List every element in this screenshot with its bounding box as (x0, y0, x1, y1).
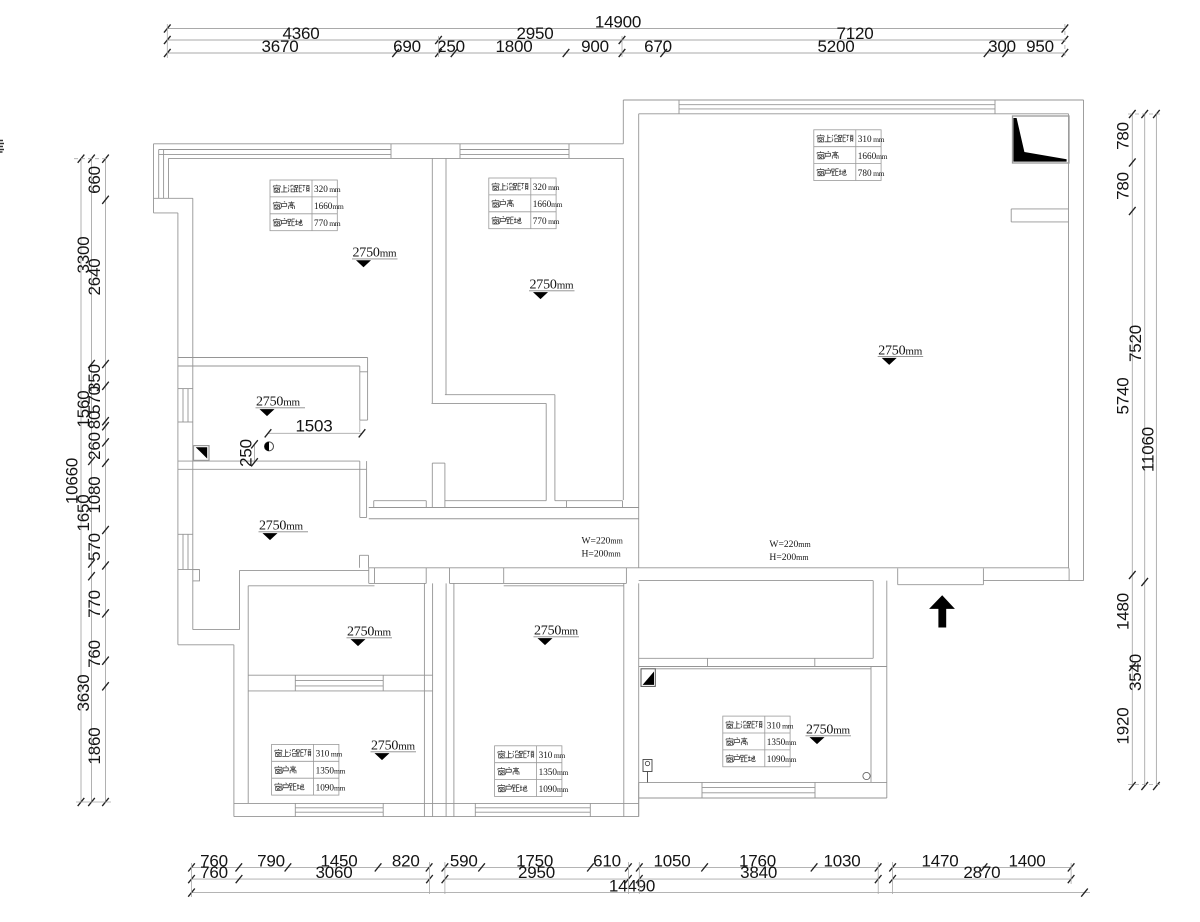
svg-text:3630: 3630 (74, 674, 93, 711)
svg-text:10660: 10660 (63, 458, 82, 504)
svg-text:610: 610 (593, 852, 621, 871)
svg-text:760: 760 (200, 863, 228, 882)
svg-text:2750mm: 2750mm (530, 278, 575, 293)
svg-text:1400: 1400 (1008, 852, 1045, 871)
svg-text:770 mm: 770 mm (533, 216, 560, 226)
svg-text:1660mm: 1660mm (314, 201, 344, 211)
svg-text:1660mm: 1660mm (858, 151, 888, 161)
svg-text:2950: 2950 (518, 863, 555, 882)
svg-text:14900: 14900 (595, 13, 641, 32)
svg-text:820: 820 (392, 852, 420, 871)
svg-text:H=200mm: H=200mm (582, 549, 622, 560)
svg-text:W=220mm: W=220mm (769, 539, 811, 550)
svg-text:670: 670 (644, 37, 672, 56)
svg-text:14490: 14490 (609, 877, 655, 896)
svg-text:250: 250 (237, 439, 256, 467)
svg-text:1480: 1480 (1114, 593, 1133, 630)
svg-text:2750mm: 2750mm (256, 395, 301, 410)
svg-text:3840: 3840 (740, 863, 777, 882)
svg-text:570: 570 (85, 533, 104, 561)
svg-text:7520: 7520 (1126, 325, 1145, 362)
svg-text:1050: 1050 (653, 852, 690, 871)
svg-text:780: 780 (1114, 122, 1133, 150)
svg-text:1090mm: 1090mm (767, 754, 797, 764)
svg-text:1920: 1920 (1114, 707, 1133, 744)
svg-text:2750mm: 2750mm (534, 624, 579, 639)
svg-text:2750mm: 2750mm (878, 343, 923, 358)
svg-text:790: 790 (257, 852, 285, 871)
svg-text:1030: 1030 (823, 852, 860, 871)
svg-text:250: 250 (437, 37, 465, 56)
svg-text:2750mm: 2750mm (371, 739, 416, 754)
svg-text:1560: 1560 (74, 390, 93, 427)
svg-text:1800: 1800 (495, 37, 532, 56)
svg-text:760: 760 (85, 640, 104, 668)
svg-text:H=200mm: H=200mm (769, 552, 809, 563)
svg-text:690: 690 (393, 37, 421, 56)
svg-text:3540: 3540 (1126, 654, 1145, 691)
svg-text:320 mm: 320 mm (533, 182, 560, 192)
svg-text:1660mm: 1660mm (533, 199, 563, 209)
svg-text:1350mm: 1350mm (316, 766, 346, 776)
svg-text:W=220mm: W=220mm (582, 536, 624, 547)
svg-text:3060: 3060 (315, 863, 352, 882)
svg-text:2750mm: 2750mm (806, 723, 851, 738)
svg-text:310 mm: 310 mm (316, 749, 343, 759)
svg-text:950: 950 (1026, 37, 1054, 56)
svg-text:300: 300 (988, 37, 1016, 56)
svg-text:1350mm: 1350mm (767, 737, 797, 747)
svg-text:1860: 1860 (85, 727, 104, 764)
svg-text:1090mm: 1090mm (539, 784, 569, 794)
svg-text:5200: 5200 (817, 37, 854, 56)
svg-text:770: 770 (85, 590, 104, 618)
svg-text:2750mm: 2750mm (353, 246, 398, 261)
svg-text:310 mm: 310 mm (767, 720, 794, 730)
svg-text:3670: 3670 (261, 37, 298, 56)
svg-text:780 mm: 780 mm (858, 168, 885, 178)
svg-text:590: 590 (450, 852, 478, 871)
svg-text:2750mm: 2750mm (347, 625, 392, 640)
svg-text:1503: 1503 (295, 416, 332, 435)
svg-text:660: 660 (85, 166, 104, 194)
svg-text:1470: 1470 (921, 852, 958, 871)
svg-text:780: 780 (1114, 172, 1133, 200)
svg-text:2870: 2870 (963, 863, 1000, 882)
svg-text:3300: 3300 (74, 236, 93, 273)
svg-text:2750mm: 2750mm (259, 519, 304, 534)
svg-text:320 mm: 320 mm (314, 184, 341, 194)
svg-text:1090mm: 1090mm (316, 782, 346, 792)
svg-text:310 mm: 310 mm (858, 134, 885, 144)
svg-text:5740: 5740 (1114, 377, 1133, 414)
svg-text:900: 900 (581, 37, 609, 56)
svg-text:260: 260 (85, 432, 104, 460)
svg-text:310 mm: 310 mm (539, 750, 566, 760)
svg-text:11060: 11060 (1139, 427, 1158, 472)
svg-text:1350mm: 1350mm (539, 767, 569, 777)
svg-text:770 mm: 770 mm (314, 218, 341, 228)
